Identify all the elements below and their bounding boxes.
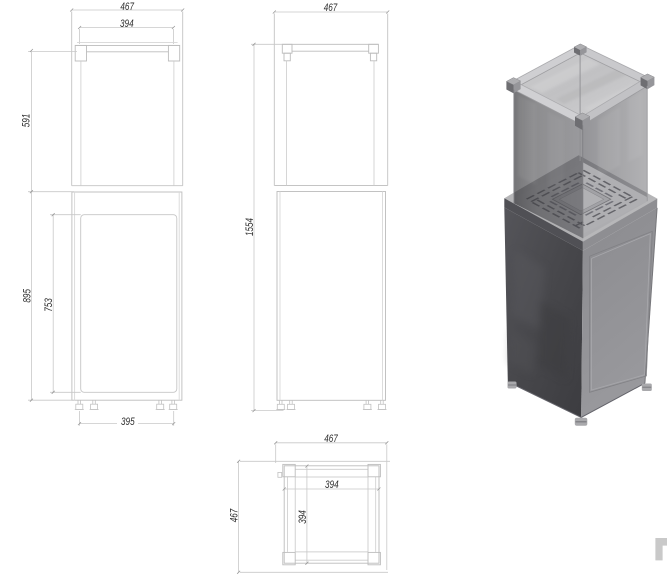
svg-text:394: 394: [120, 18, 134, 30]
svg-text:394: 394: [325, 479, 339, 491]
svg-text:467: 467: [120, 1, 134, 13]
svg-text:467: 467: [324, 433, 338, 445]
svg-text:753: 753: [43, 298, 55, 312]
svg-text:395: 395: [121, 416, 135, 428]
svg-text:394: 394: [297, 510, 309, 524]
svg-text:467: 467: [324, 2, 338, 14]
svg-text:1554: 1554: [244, 218, 256, 236]
svg-text:467: 467: [229, 508, 241, 522]
svg-text:895: 895: [21, 288, 33, 302]
svg-text:591: 591: [21, 114, 33, 128]
